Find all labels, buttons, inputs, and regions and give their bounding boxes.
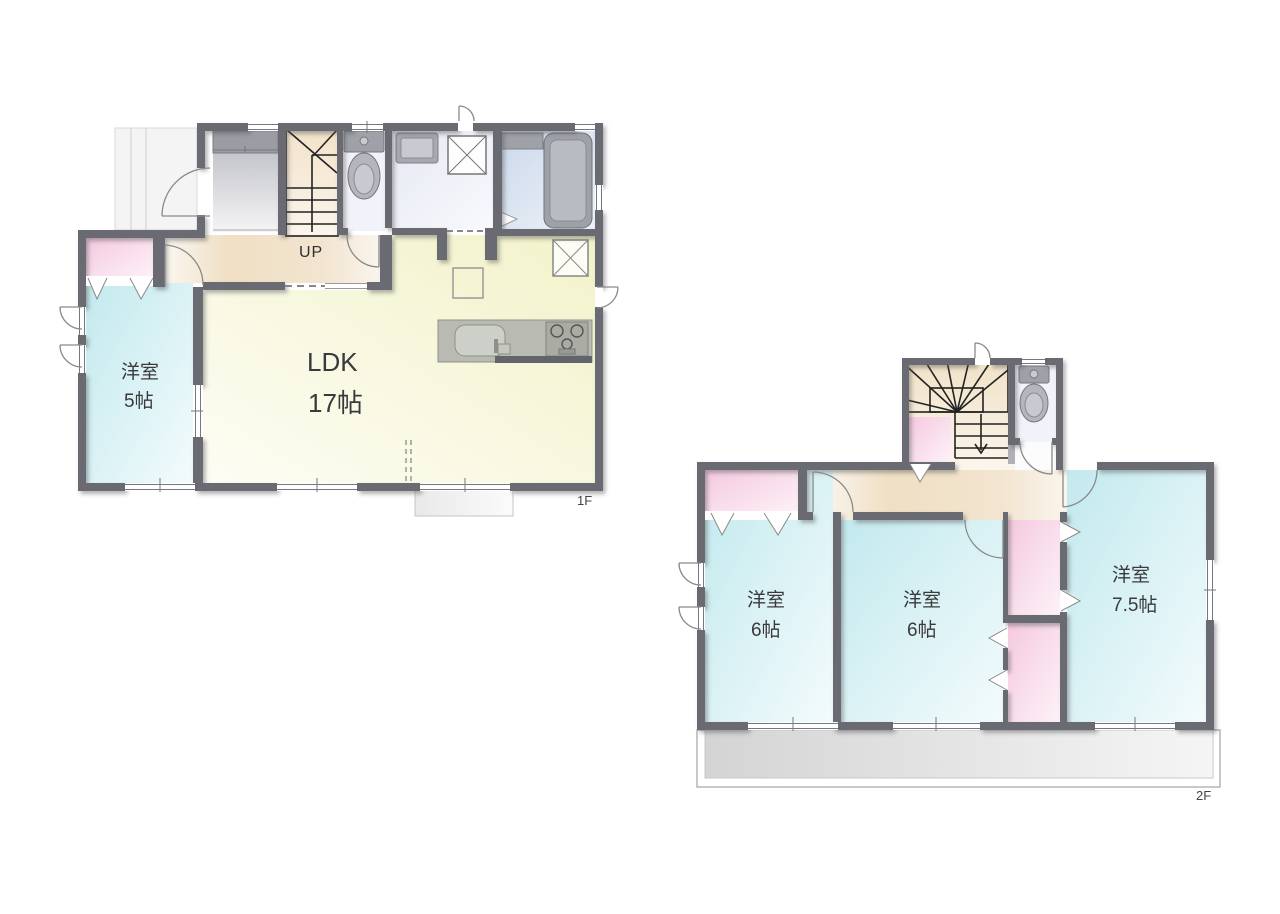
entrance-tataki: [213, 153, 278, 232]
stair-window-icon: [975, 343, 990, 358]
entrance-porch: [115, 128, 197, 230]
stairs-up-label: UP: [299, 245, 323, 261]
floor1-label: 1F: [577, 494, 592, 507]
room2f-left-name: 洋室: [747, 591, 785, 610]
room-yoshitsu-5-floor: [86, 283, 193, 483]
toilet-icon-2f: [1019, 366, 1049, 422]
room2f-left-size: 6帖: [751, 621, 781, 640]
refrigerator-icon: [553, 240, 588, 276]
room-ldk-size: 17帖: [308, 390, 363, 416]
washbasin-icon: [396, 133, 438, 163]
floor-1-plan: [60, 106, 618, 516]
shoe-cabinet-icon: [213, 131, 278, 153]
room2f-right-size: 7.5帖: [1112, 596, 1157, 615]
terrace: [415, 490, 513, 516]
room-yoshitsu5-size: 5帖: [124, 392, 154, 411]
closet-2f-top: [1008, 520, 1060, 615]
balcony: [697, 730, 1220, 787]
room-yoshitsu5-name: 洋室: [121, 363, 159, 382]
bath-counter: [495, 133, 543, 149]
stove-icon: [546, 322, 588, 356]
room2f-right-name: 洋室: [1112, 566, 1150, 585]
hall-floor-1f: [157, 235, 392, 283]
room2f-middle-name: 洋室: [903, 591, 941, 610]
closet-1f: [86, 238, 153, 278]
closet-2f-left: [705, 470, 798, 515]
bathtub-icon: [544, 133, 592, 228]
washing-machine-icon: [448, 136, 486, 174]
room2f-middle-size: 6帖: [907, 621, 937, 640]
kitchen-counter: [438, 320, 592, 363]
closet-2f-bottom: [1008, 623, 1060, 722]
floorplan-canvas: 洋室 5帖 LDK 17帖 UP 1F 洋室 6帖 洋室 6帖 洋室 7.5帖 …: [0, 0, 1280, 914]
room-ldk-name: LDK: [307, 349, 358, 375]
floor2-label: 2F: [1196, 789, 1211, 802]
washroom-door-icon: [459, 106, 474, 121]
closet-2f-stairs: [908, 417, 951, 463]
floorplan-drawing: [0, 0, 1280, 914]
